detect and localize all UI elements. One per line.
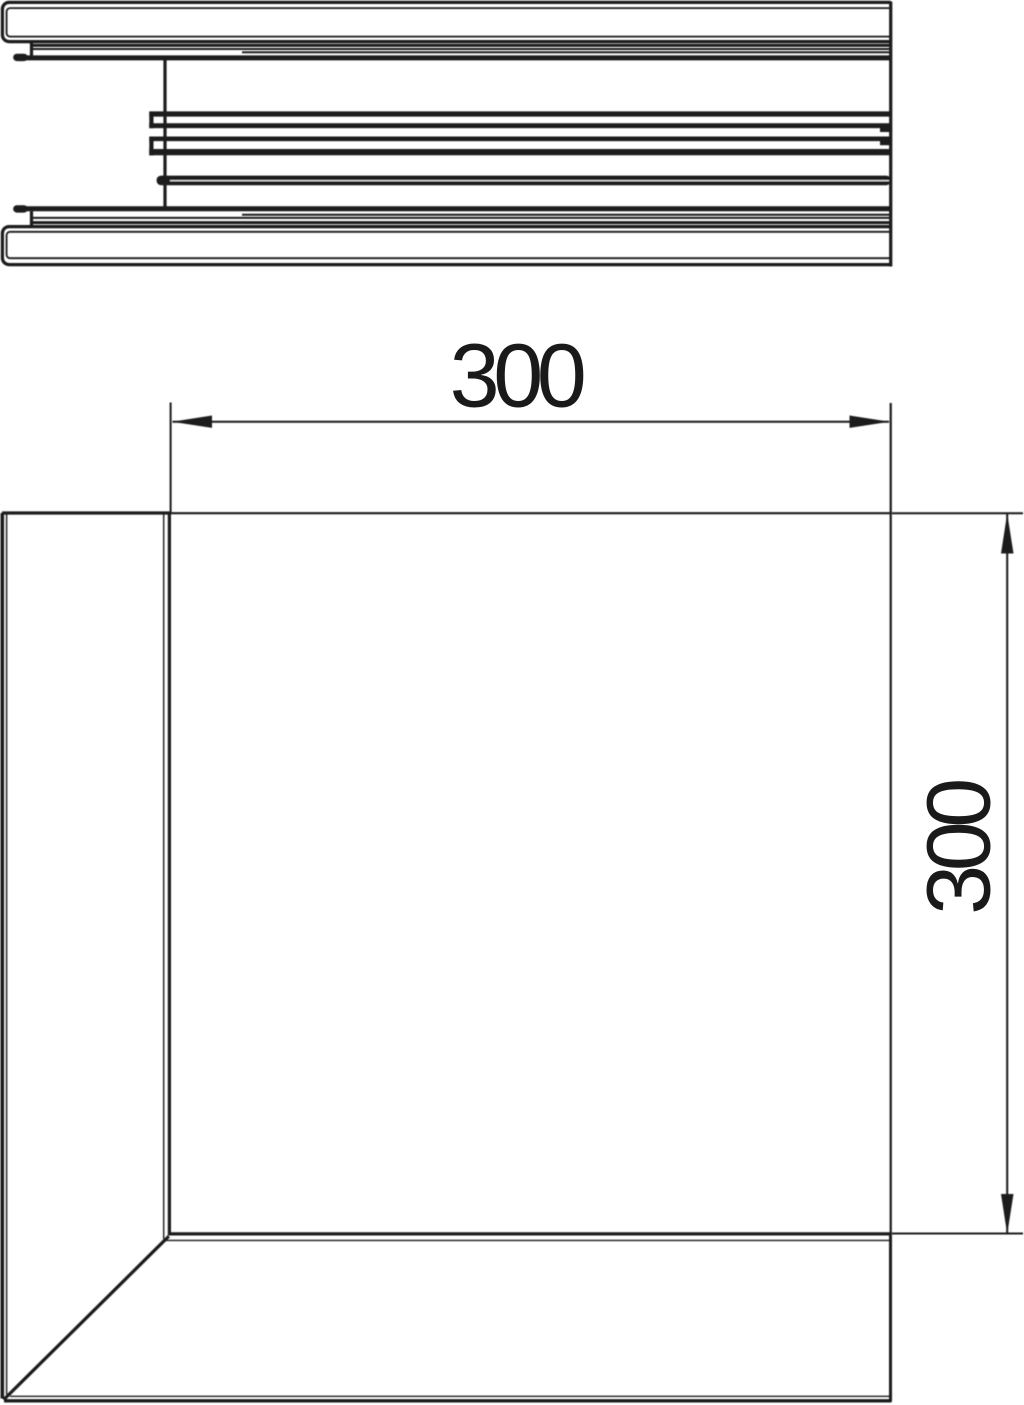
svg-text:300: 300 — [910, 781, 1010, 915]
svg-text:300: 300 — [450, 327, 584, 427]
